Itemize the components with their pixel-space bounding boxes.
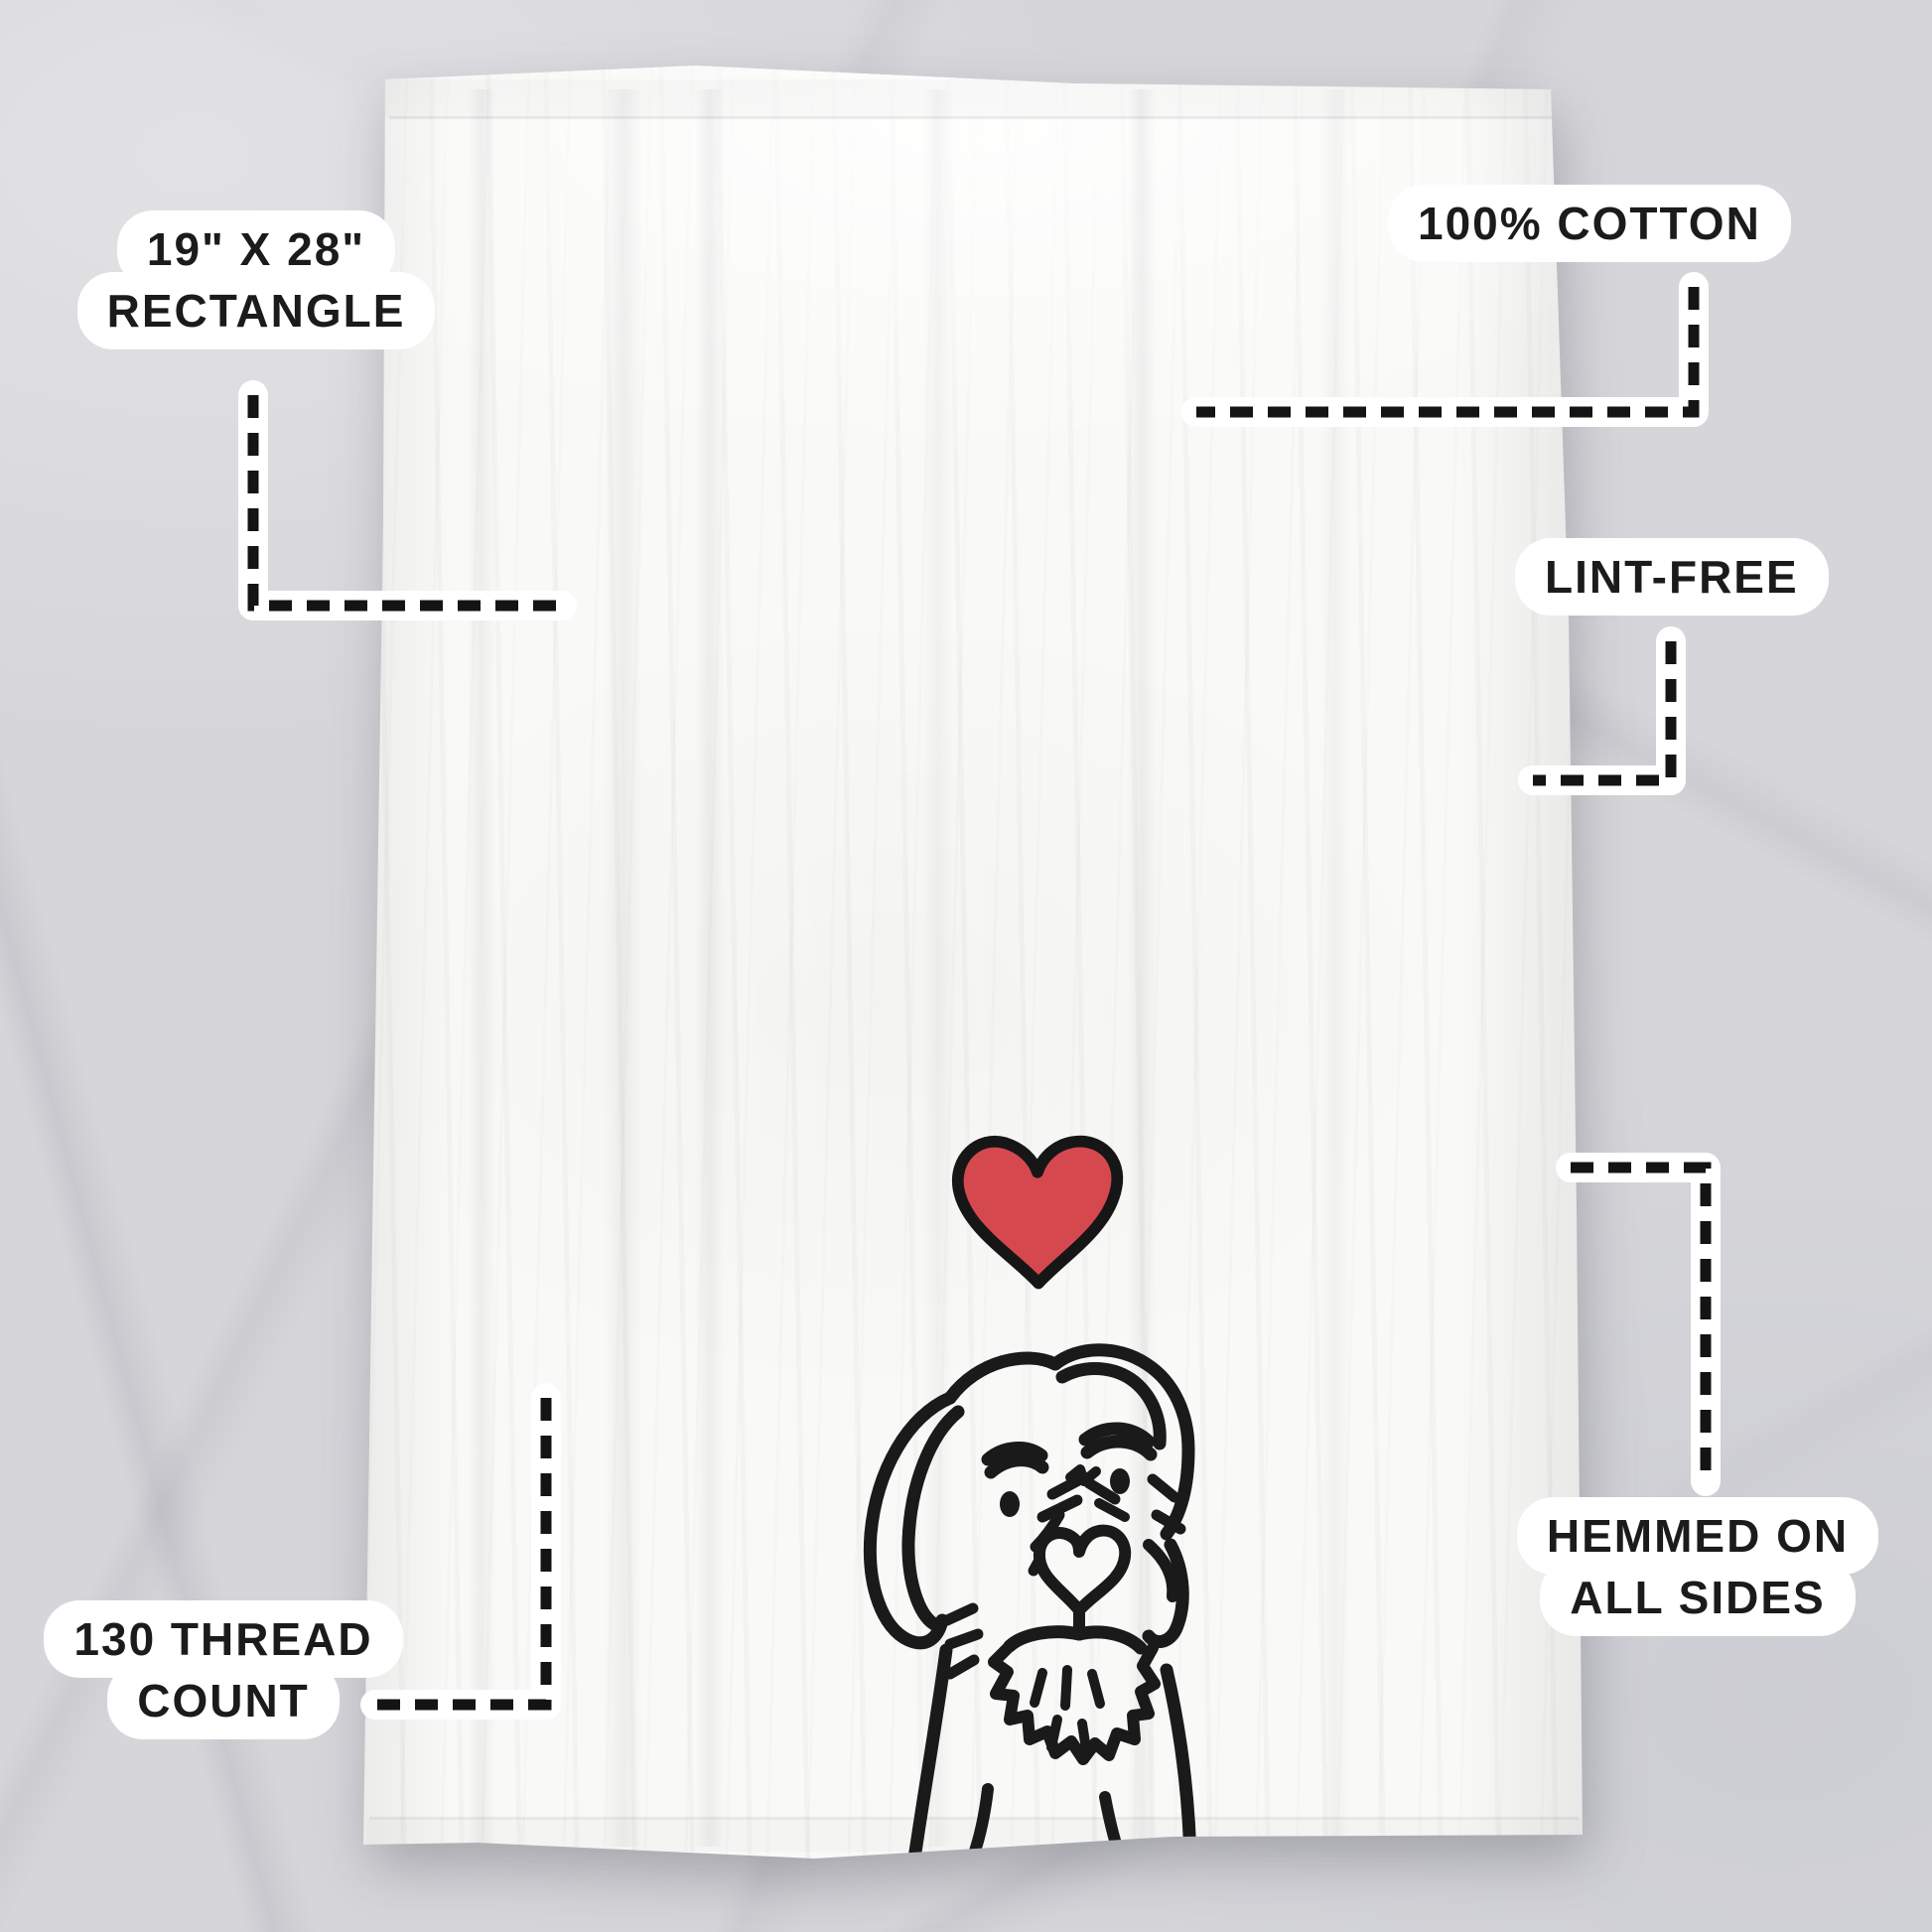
callout-size-line2: RECTANGLE <box>77 272 436 349</box>
towel-crease <box>604 89 643 1847</box>
callout-lint: LINT-FREE <box>1515 538 1829 616</box>
towel-top-hem-stitch <box>389 116 1553 119</box>
towel-crease <box>467 89 496 1847</box>
callout-thread-line2: COUNT <box>107 1662 340 1739</box>
callout-material-label: 100% COTTON <box>1388 185 1791 262</box>
product-photo: 19" X 28" RECTANGLE 100% COTTON LINT-FRE… <box>0 0 1932 1932</box>
towel-crease <box>1320 89 1350 1847</box>
towel-top-hem-band <box>383 79 1555 117</box>
callout-hemmed-line2: ALL SIDES <box>1540 1559 1855 1636</box>
towel-crease <box>695 89 725 1847</box>
heart-icon <box>941 1118 1136 1297</box>
callout-thread: 130 THREAD COUNT <box>45 1600 402 1739</box>
callout-hemmed: HEMMED ON ALL SIDES <box>1484 1497 1911 1636</box>
callout-size: 19" X 28" RECTANGLE <box>58 210 455 349</box>
callout-lint-label: LINT-FREE <box>1515 538 1829 616</box>
callout-material: 100% COTTON <box>1388 185 1791 262</box>
dog-illustration <box>839 1320 1236 1886</box>
